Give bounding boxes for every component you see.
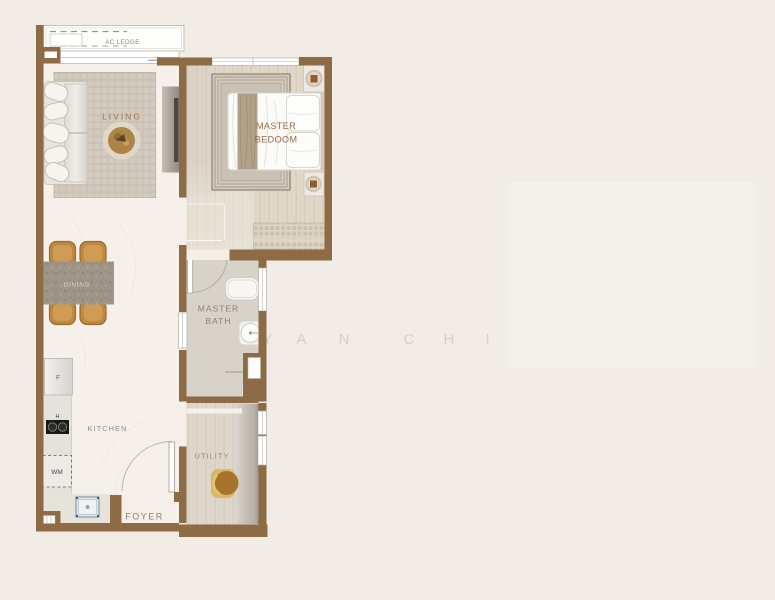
svg-text:H: H — [56, 414, 60, 420]
svg-text:UTILITY: UTILITY — [195, 452, 230, 461]
svg-text:N: N — [339, 331, 350, 348]
svg-text:A: A — [297, 331, 307, 348]
svg-text:BATH: BATH — [205, 316, 231, 326]
svg-text:BEDOOM: BEDOOM — [255, 135, 298, 145]
svg-text:MASTER: MASTER — [198, 304, 239, 314]
svg-text:LIVING: LIVING — [102, 112, 142, 122]
svg-text:DINING: DINING — [64, 282, 90, 289]
svg-text:C: C — [404, 331, 415, 348]
svg-text:I: I — [486, 331, 490, 348]
svg-text:WM: WM — [51, 469, 63, 476]
svg-text:FOYER: FOYER — [125, 512, 164, 522]
svg-text:F: F — [56, 376, 60, 382]
svg-text:AC LEDGE: AC LEDGE — [105, 39, 140, 46]
svg-text:MASTER: MASTER — [256, 121, 296, 131]
svg-text:H: H — [444, 331, 455, 348]
svg-text:KITCHEN: KITCHEN — [88, 424, 128, 433]
